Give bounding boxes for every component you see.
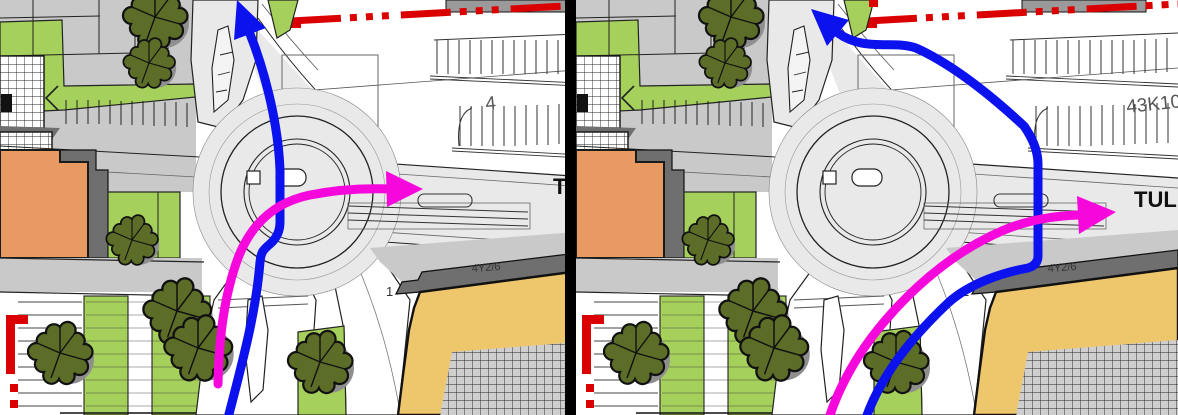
- comparison-stage: 4Y2/6 1 TULL 4: [0, 0, 1178, 415]
- street-name-label: TULL: [1134, 187, 1178, 212]
- plan-panel-left: 4Y2/6 1 TULL 4: [0, 0, 565, 415]
- site-plan-left: 4Y2/6 1 TULL 4: [0, 0, 565, 415]
- plan-panel-right: TULL 43K10: [576, 0, 1178, 415]
- street-name-label: TULL: [553, 174, 565, 199]
- site-plan-right: TULL 43K10: [576, 0, 1178, 415]
- panel-divider: [565, 0, 576, 415]
- boundary-dot-top: [869, 0, 878, 7]
